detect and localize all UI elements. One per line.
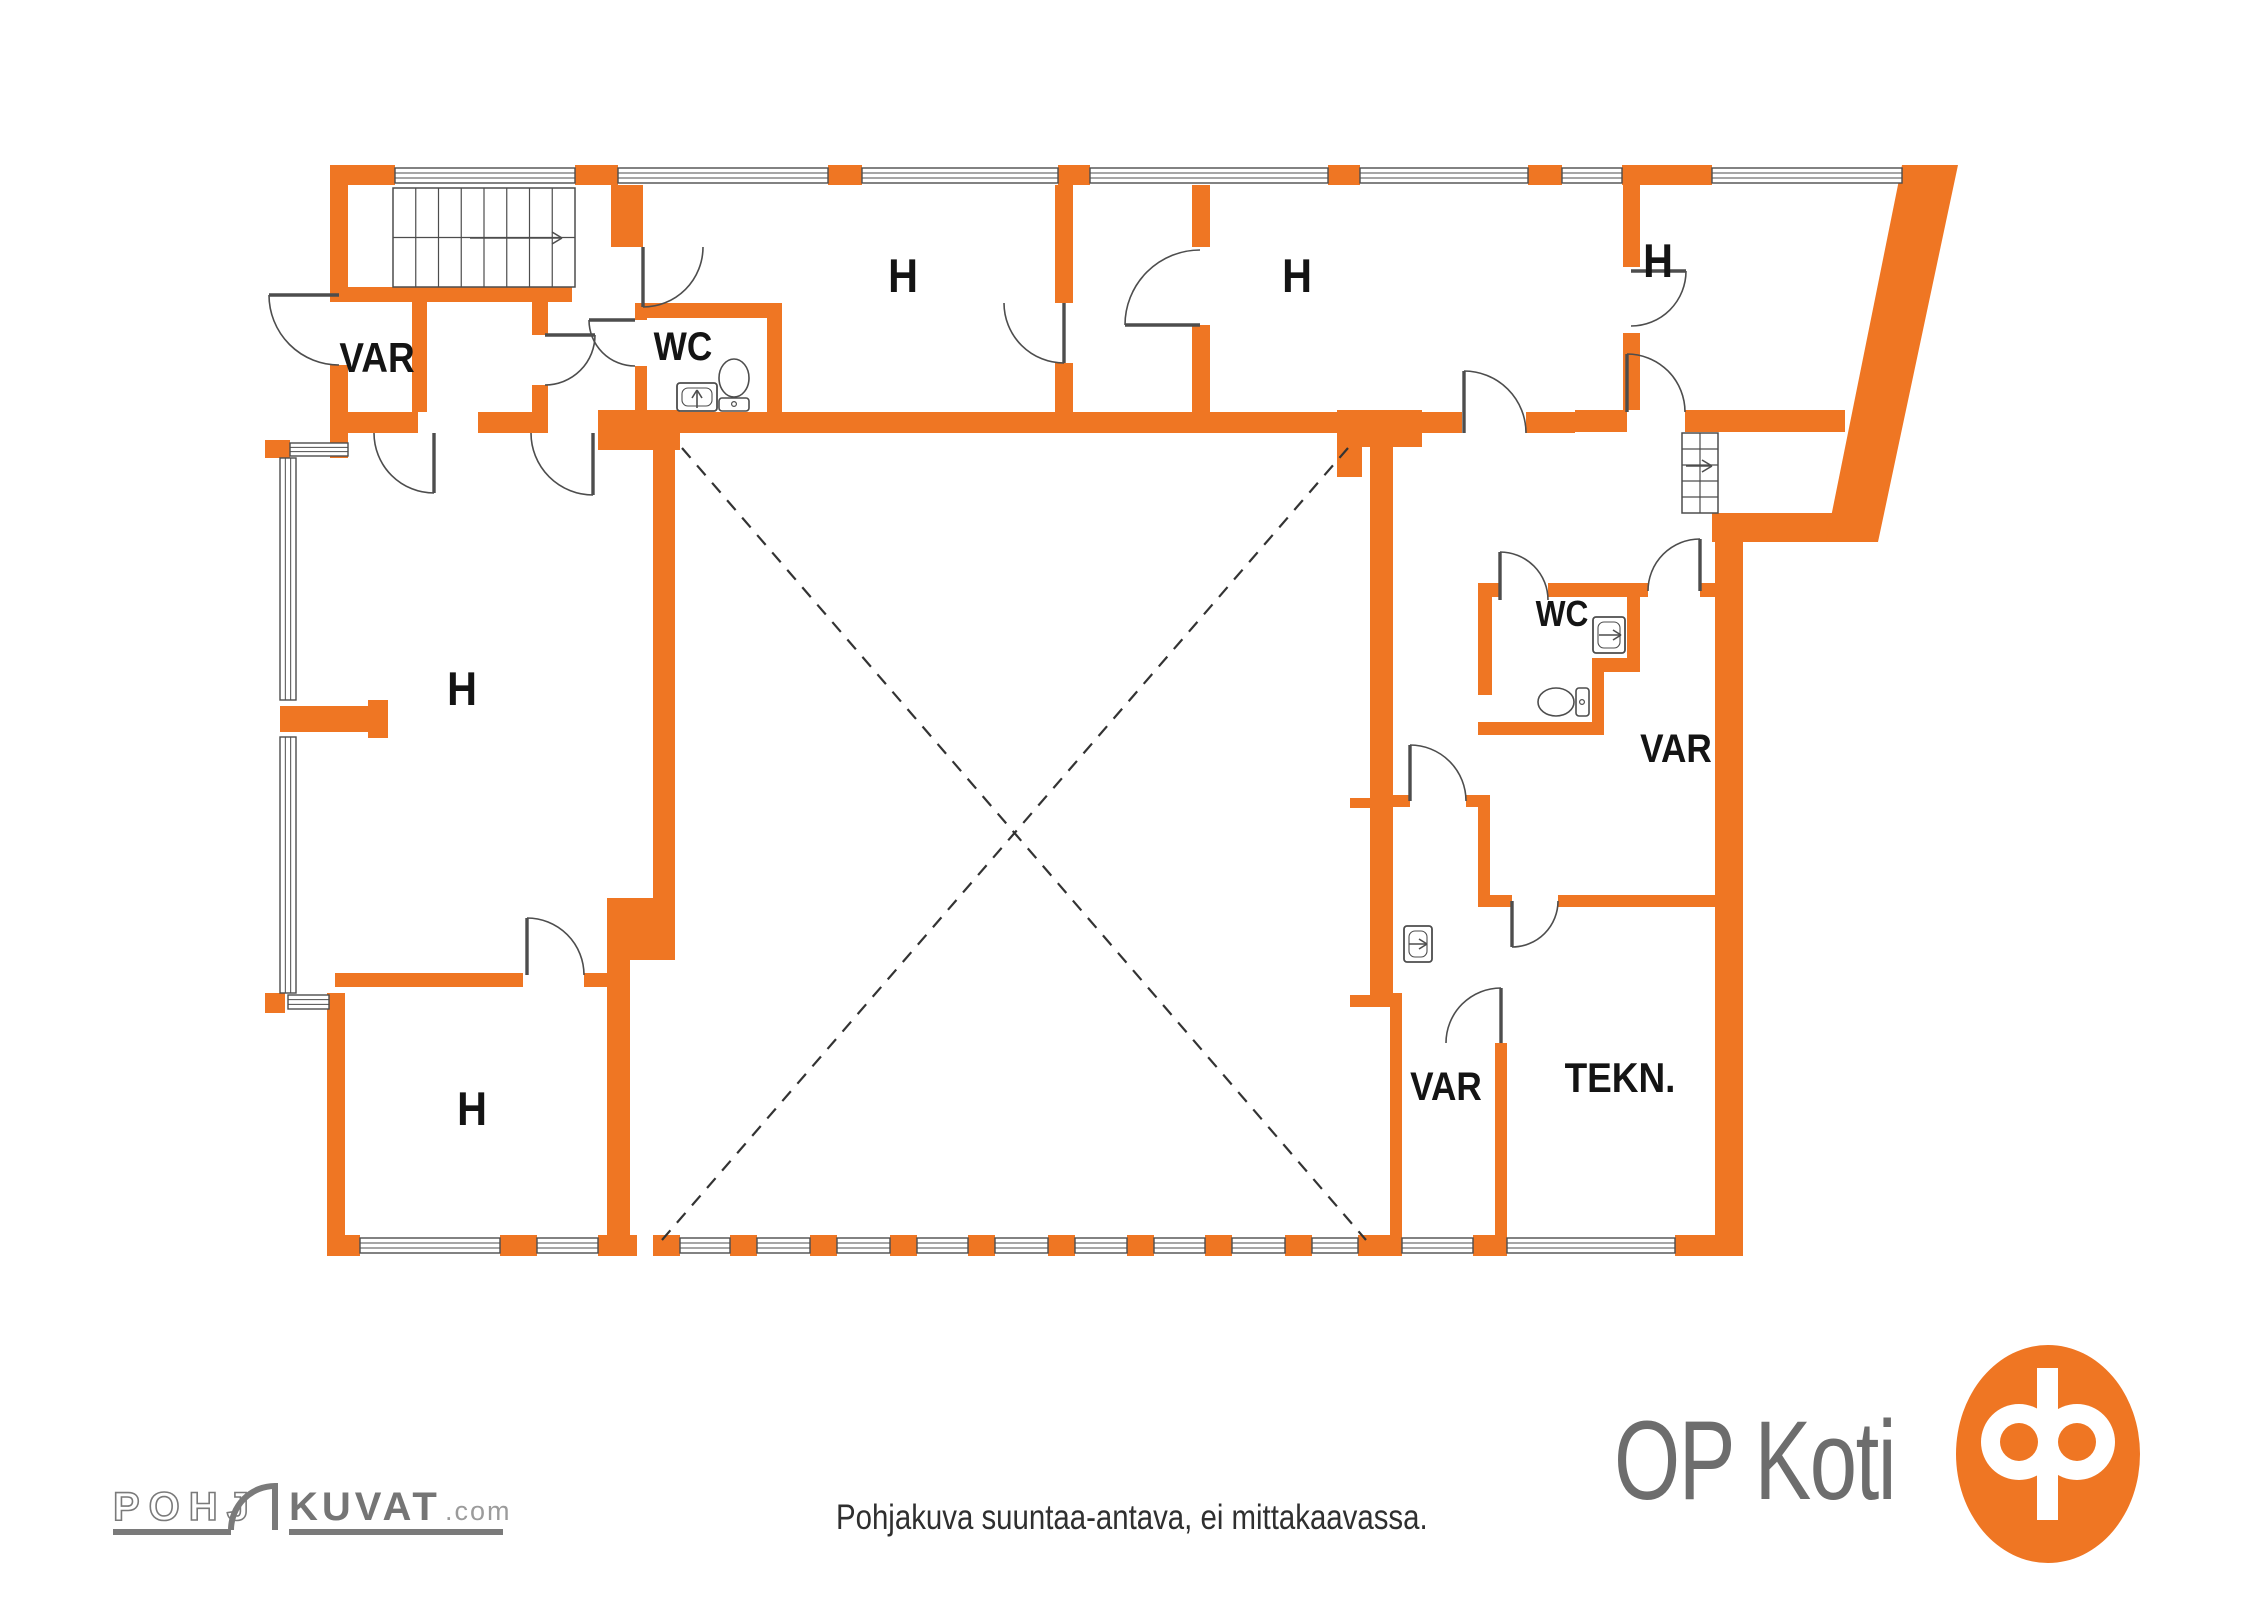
wall — [635, 366, 647, 412]
wall — [1205, 1235, 1232, 1256]
window — [1312, 1238, 1358, 1253]
wall — [280, 706, 368, 732]
pohjakuvat-logo-icon: POHJ KUVAT .com — [103, 1472, 533, 1552]
wall — [335, 973, 523, 987]
wall — [607, 898, 675, 960]
wall — [1422, 412, 1462, 433]
window — [1090, 168, 1328, 183]
room-label: VAR — [1640, 726, 1712, 771]
wall-slanted — [1826, 165, 1958, 542]
toilet-icon — [1538, 688, 1574, 716]
wall — [1478, 895, 1512, 907]
wall — [330, 165, 348, 295]
window — [280, 458, 296, 700]
room-label: H — [457, 1084, 487, 1136]
toilet-tank — [1576, 688, 1589, 716]
wall — [1058, 165, 1090, 185]
wall — [1622, 165, 1712, 185]
window — [280, 737, 296, 993]
door-swing-arc — [1648, 539, 1700, 591]
pohjakuvat-part2: KUVAT — [289, 1485, 441, 1529]
wall — [584, 973, 607, 987]
door-swing-arc — [1446, 988, 1501, 1043]
window — [1232, 1238, 1285, 1253]
disclaimer-text: Pohjakuva suuntaa-antava, ei mittakaavas… — [836, 1498, 1428, 1538]
wall — [1055, 185, 1073, 303]
wall — [1575, 410, 1627, 432]
wall — [890, 1235, 917, 1256]
floor-plan-canvas: VARWCHHHHWCVARHVARTEKN. — [0, 0, 2262, 1600]
door-swing-arc — [1410, 745, 1466, 801]
wall — [1592, 658, 1640, 672]
door-swing-arc — [1500, 552, 1548, 600]
window — [618, 168, 828, 183]
room-label: VAR — [339, 335, 414, 382]
wall — [635, 303, 647, 320]
door-swing-arc — [269, 295, 339, 365]
wall — [1393, 795, 1410, 807]
room-label: H — [1643, 236, 1673, 288]
wall — [1473, 1235, 1507, 1256]
door-swing-arc — [643, 247, 703, 307]
room-label: H — [447, 664, 477, 716]
wall — [1685, 410, 1845, 432]
window — [1360, 168, 1528, 183]
room-label: VAR — [1410, 1064, 1482, 1109]
door-swing-arc — [1125, 250, 1200, 325]
wall — [1285, 1235, 1312, 1256]
wall — [1127, 1235, 1154, 1256]
room-label: H — [888, 251, 918, 303]
room-label: H — [1282, 251, 1312, 303]
wall — [611, 185, 643, 247]
wall — [1478, 583, 1492, 695]
floor-plan: VARWCHHHHWCVARHVARTEKN. — [0, 0, 2262, 1600]
wall — [265, 440, 290, 458]
window — [537, 1238, 598, 1253]
wall — [532, 385, 548, 433]
wall — [368, 700, 388, 738]
wall — [327, 993, 345, 1255]
window — [395, 168, 575, 183]
window — [1154, 1238, 1205, 1253]
window — [1507, 1238, 1675, 1253]
window — [757, 1238, 810, 1253]
wall — [500, 1235, 537, 1256]
door-swing-arc — [531, 433, 593, 495]
wall — [1675, 1235, 1743, 1256]
wall — [1337, 410, 1422, 447]
wall — [1478, 722, 1604, 735]
wall — [1558, 895, 1715, 907]
wall — [968, 1235, 995, 1256]
wall — [1337, 447, 1362, 477]
window — [1562, 168, 1622, 183]
window — [680, 1238, 730, 1253]
window — [290, 443, 348, 456]
wall — [730, 1235, 757, 1256]
wall — [1623, 185, 1640, 267]
window — [995, 1238, 1048, 1253]
wall — [1192, 325, 1210, 412]
wall — [1390, 993, 1402, 1238]
window — [1712, 168, 1902, 183]
wall — [653, 412, 675, 900]
door-swing-arc — [545, 335, 595, 385]
void-cross-line — [682, 448, 1366, 1240]
window — [1075, 1238, 1127, 1253]
op-koti-logo: OP Koti — [1600, 1388, 2160, 1618]
wall — [1055, 363, 1073, 412]
door-swing-arc — [589, 320, 635, 366]
window — [360, 1238, 500, 1253]
pohjakuvat-suffix: .com — [445, 1496, 512, 1526]
window — [837, 1238, 890, 1253]
wall — [1528, 165, 1562, 185]
wall — [1370, 443, 1393, 995]
toilet-icon — [719, 359, 749, 397]
void-cross-line — [662, 448, 1348, 1240]
wall — [575, 165, 618, 185]
door-swing-arc — [527, 918, 584, 975]
door-swing-arc — [374, 433, 434, 493]
wall — [1526, 412, 1575, 433]
wall — [828, 165, 862, 185]
wall — [1715, 542, 1743, 1235]
wall — [265, 993, 285, 1013]
wall — [1627, 583, 1640, 663]
wall — [598, 1235, 637, 1256]
pohjakuvat-logo: POHJ KUVAT .com — [103, 1472, 533, 1552]
door-swing-arc — [1004, 303, 1064, 363]
room-label: TEKN. — [1565, 1055, 1676, 1102]
door-swing-arc — [1464, 371, 1526, 433]
wall — [478, 412, 538, 433]
wall — [532, 287, 548, 335]
window — [862, 168, 1058, 183]
window — [1402, 1238, 1473, 1253]
room-label: WC — [1536, 594, 1589, 634]
window — [917, 1238, 968, 1253]
wall — [1478, 795, 1490, 895]
wall — [607, 960, 630, 1235]
wall — [1700, 583, 1715, 597]
wall — [1048, 1235, 1075, 1256]
wall — [1328, 165, 1360, 185]
wall — [680, 412, 1337, 433]
wall — [1350, 798, 1372, 808]
wall — [1495, 1043, 1507, 1235]
wall — [330, 412, 418, 433]
op-koti-logo-text: OP Koti — [1614, 1396, 1895, 1525]
wall — [1192, 185, 1210, 247]
wall — [810, 1235, 837, 1256]
wall — [327, 1235, 360, 1256]
window — [288, 995, 329, 1009]
room-label: WC — [654, 324, 713, 369]
toilet-tank — [719, 398, 749, 411]
door-swing-arc — [1512, 901, 1558, 947]
op-logo-icon — [1955, 1342, 2145, 1566]
wall — [653, 1235, 680, 1256]
